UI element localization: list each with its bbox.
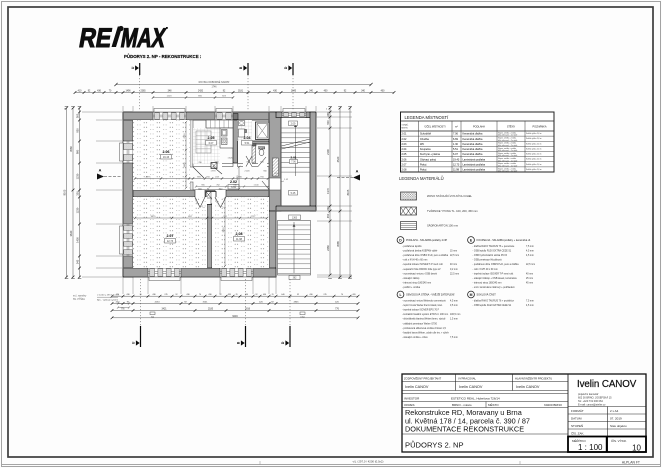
svg-text:6.69: 6.69 [453,138,458,141]
svg-text:920: 920 [151,317,154,319]
svg-text:- vyrovnávací vrstva Weberdur: - vyrovnávací vrstva Weberdur cementová [402,300,446,303]
svg-text:m.č. rozměry: m.č. rozměry [73,295,87,298]
svg-text:10: 10 [632,444,641,453]
svg-text:7,5 mm: 7,5 mm [526,246,534,248]
svg-text:12.73: 12.73 [453,163,460,166]
svg-text:436: 436 [126,294,129,296]
svg-text:40 mm: 40 mm [526,273,533,275]
svg-text:L: L [399,293,401,297]
svg-text:- podlahová dílce OSB/3 P+D, p: - podlahová dílce OSB/3 P+D, pero a dráž… [402,254,449,257]
svg-text:2.04: 2.04 [402,148,407,151]
svg-text:640: 640 [281,294,284,296]
svg-text:1080: 1080 [237,175,239,181]
svg-text:1 970: 1 970 [210,171,216,173]
svg-text:2727: 2727 [251,216,257,218]
svg-text:100,5 mm: 100,5 mm [450,314,460,316]
svg-text:2185: 2185 [208,309,214,311]
svg-text:4,5 mm: 4,5 mm [450,301,458,303]
svg-text:92: 92 [255,294,257,296]
svg-text:SÁDROKARTON 100 mm: SÁDROKARTON 100 mm [427,224,459,228]
svg-text:5.51: 5.51 [245,142,250,145]
svg-text:2816: 2816 [245,309,251,311]
svg-text:335: 335 [228,294,231,296]
svg-text:70: 70 [271,294,273,296]
svg-text:2.02: 2.02 [402,138,407,141]
svg-text:2.07: 2.07 [402,163,407,166]
svg-text:930: 930 [76,128,80,133]
svg-text:6.07: 6.07 [453,153,458,156]
svg-text:1 625: 1 625 [227,158,233,160]
svg-text:- základní penetrace Weber G70: - základní penetrace Weber G700 [402,322,438,325]
svg-text:19.43: 19.43 [163,156,170,159]
svg-text:PŮDORYS 2. NP - REKONSTRUKCE: PŮDORYS 2. NP - REKONSTRUKCE : [124,54,202,59]
svg-text:5.25: 5.25 [291,192,296,195]
svg-text:1370: 1370 [326,188,330,194]
svg-text:3181: 3181 [238,91,244,93]
svg-text:22,5 mm: 22,5 mm [450,255,459,257]
svg-text:- vyrovnávací vrstva z OSB des: - vyrovnávací vrstva z OSB desek [402,272,438,275]
svg-text:2550: 2550 [184,133,186,139]
svg-text:PODLAHA - SKLADBA podlahy 2.NP: PODLAHA - SKLADBA podlahy 2.NP [406,239,447,242]
svg-text:- kontaktní fasádní systém ET: - kontaktní fasádní systém ETICS tl. 100… [402,313,448,316]
svg-text:OZNAČ.: OZNAČ. [402,124,410,127]
svg-text:19.43: 19.43 [453,158,460,161]
svg-text:1230: 1230 [76,173,80,179]
svg-text:ČÍS. VÝKR.: ČÍS. VÝKR. [611,438,627,443]
svg-text:MAX: MAX [119,22,168,53]
svg-text:- tepelná izolace ISOVER EPS 7: - tepelná izolace ISOVER EPS 70 F [402,309,440,312]
svg-text:ČÍS. ZAK.: ČÍS. ZAK. [571,431,585,436]
svg-text:07. 2019: 07. 2019 [610,417,622,421]
svg-text:Schodiště: Schodiště [420,133,432,136]
svg-text:3875: 3875 [151,216,157,218]
svg-text:ZDIVO STÁVAJÍCÍ Z PLNÝCH CIHEL: ZDIVO STÁVAJÍCÍ Z PLNÝCH CIHEL [427,194,473,198]
svg-text:ÚČEL MÍSTNOSTI: ÚČEL MÍSTNOSTI [425,126,446,129]
svg-text:D: D [284,66,288,69]
svg-text:11.98: 11.98 [453,169,460,172]
svg-text:3585: 3585 [336,241,340,247]
svg-text:500: 500 [326,120,330,125]
svg-text:22,5 mm: 22,5 mm [450,273,459,275]
svg-text:- tepelná izolace ISOVER T-P m: - tepelná izolace ISOVER T-P mezi rošt [402,263,443,266]
svg-text:Kuchyně + jídelna: Kuchyně + jídelna [420,153,441,156]
svg-text:2.03: 2.03 [259,146,265,150]
svg-text:- probarvená silikonová omítka: - probarvená silikonová omítka zrnitost … [402,327,446,330]
svg-text:7,5 mm: 7,5 mm [526,301,534,303]
svg-text:320: 320 [76,191,80,196]
svg-text:2845: 2845 [294,302,300,304]
svg-text:6.07: 6.07 [209,142,214,145]
svg-text:7.06: 7.06 [453,133,458,136]
svg-text:U: U [131,66,135,69]
svg-text:OKRES: OKRES [404,403,415,407]
svg-text:- podlahová deska AGEPAN výběr: - podlahová deska AGEPAN výběr [402,250,438,253]
svg-text:Laminátová podlaha: Laminátová podlaha [463,158,486,161]
svg-text:- podbití + omítka: - podbití + omítka [402,286,421,289]
svg-text:INVESTOR: INVESTOR [404,397,420,401]
svg-text:2.03: 2.03 [402,143,407,146]
svg-text:TVÁRNICE YTONG TL. 100, 200, 4: TVÁRNICE YTONG TL. 100, 200, 450 mm [427,209,479,213]
svg-text:SV. VÝŠKA: SV. VÝŠKA [73,298,85,301]
svg-text:12.73: 12.73 [167,240,174,243]
svg-text:ALPLAN FT: ALPLAN FT [622,461,640,465]
svg-text:3640: 3640 [69,230,73,236]
svg-text:8105: 8105 [63,189,67,195]
svg-text:Světlá výška 2,6 m: Světlá výška 2,6 m [526,168,542,171]
svg-text:7.06: 7.06 [291,162,296,164]
svg-text:bílá, otěruvzd. + 2x nátěr: bílá, otěruvzd. + 2x nátěr [498,170,518,173]
svg-text:Světlá výška 2,6 m: Světlá výška 2,6 m [526,137,542,140]
svg-text:A: A [356,170,359,174]
svg-text:430: 430 [309,294,312,296]
svg-text:230: 230 [326,206,330,211]
svg-text:Světlá výška 2,6 m: Světlá výška 2,6 m [526,153,542,156]
svg-text:STĚNY: STĚNY [507,126,516,129]
svg-text:STUPEŇ: STUPEŇ [571,423,583,428]
svg-text:± 0,000 = 297,0 m n.m.: ± 0,000 = 297,0 m n.m. [97,295,120,297]
svg-text:Ivelin CANOV: Ivelin CANOV [459,385,483,389]
svg-text:- dlažba RAKO TAURUS 76 + pene: - dlažba RAKO TAURUS 76 + penetrace [473,245,515,248]
svg-text:Chodba: Chodba [420,138,429,141]
svg-text:2 020: 2 020 [244,171,250,173]
svg-text:ESTETICO REAL, Hybešova 726/14: ESTETICO REAL, Hybešova 726/14 [451,397,500,401]
svg-text:POZNÁMKA: POZNÁMKA [532,126,546,129]
svg-text:11.98: 11.98 [236,238,243,241]
svg-text:- trámový strop 180/240 mm: - trámový strop 180/240 mm [473,281,502,284]
svg-text:436: 436 [152,294,155,296]
svg-text:3,5 mm: 3,5 mm [450,305,458,307]
svg-text:1.30: 1.30 [453,143,458,146]
svg-text:Keramická dlažba: Keramická dlažba [463,148,483,151]
svg-text:3141: 3141 [203,302,209,304]
svg-text:1230: 1230 [76,207,80,213]
svg-text:- stávající záklop: - stávající záklop [402,277,420,280]
svg-text:PODLAHA: PODLAHA [473,126,485,129]
svg-text:70: 70 [341,294,343,296]
svg-text:RE: RE [77,22,114,53]
svg-text:VYPRACOVAL: VYPRACOVAL [458,377,477,381]
svg-text:4,5 mm: 4,5 mm [526,251,534,253]
svg-text:- sklovláknitá tkanina Weber.t: - sklovláknitá tkanina Weber.therm, výzt… [402,318,446,321]
svg-text:1203: 1203 [167,95,173,97]
svg-text:2.01: 2.01 [402,133,407,136]
svg-text:Keramická dlažba: Keramická dlažba [463,143,483,146]
svg-text:OBVODOVÁ STĚNA - VNĚJŠÍ ZATEPL: OBVODOVÁ STĚNA - VNĚJŠÍ ZATEPLENÍ [406,294,455,297]
svg-text:2190: 2190 [326,149,330,155]
svg-text:BRNO - město: BRNO - město [452,403,472,407]
svg-text:LEGENDA MATERIÁLŮ: LEGENDA MATERIÁLŮ [399,176,444,181]
svg-text:70: 70 [235,294,237,296]
svg-text:- stávající záklop + OSB desek: - stávající záklop + OSB desek, konstruk… [473,277,518,280]
svg-text:1 100: 1 100 [253,184,259,186]
svg-text:- stávající omítka + zdivo: - stávající omítka + zdivo [402,336,428,339]
svg-text:1905: 1905 [184,162,186,168]
svg-text:FORMÁT: FORMÁT [571,409,584,413]
svg-text:m²: m² [455,126,458,129]
svg-text:Ivelin CANOV: Ivelin CANOV [577,379,637,390]
svg-text:2 x A4: 2 x A4 [610,409,619,413]
svg-text:92: 92 [175,294,177,296]
svg-text:8105: 8105 [346,189,350,195]
svg-text:MÍSTN.: MÍSTN. [402,126,409,129]
svg-text:45 mm: 45 mm [526,282,533,284]
svg-text:5.51: 5.51 [453,148,458,151]
svg-text:Keramická dlažba: Keramická dlažba [463,153,483,156]
svg-text:745: 745 [323,294,326,296]
svg-text:92: 92 [297,294,299,296]
svg-text:2.06: 2.06 [402,158,407,161]
svg-text:Pokoj: Pokoj [420,169,427,172]
svg-text:- fasádní barva Weber, odstín: - fasádní barva Weber, odstín dle inv. +… [402,331,449,334]
svg-text:Světlá výška 2,6 m: Světlá výška 2,6 m [526,132,542,135]
svg-text:- trámový strop 180/240 mm: - trámový strop 180/240 mm [402,281,431,284]
svg-text:- OSB penetrace Hloubková: - OSB penetrace Hloubková [473,259,503,262]
svg-text:2.08: 2.08 [402,169,407,172]
svg-text:2.04: 2.04 [244,136,251,140]
svg-text:15 mm: 15 mm [450,251,457,253]
svg-text:2.08: 2.08 [236,232,243,236]
svg-text:Světlá výška 2,6 m: Světlá výška 2,6 m [526,147,542,150]
svg-text:Ivelin CANOV: Ivelin CANOV [405,385,429,389]
svg-text:Světlá výška 2,6 m: Světlá výška 2,6 m [526,163,542,166]
svg-text:420: 420 [352,294,355,296]
svg-text:ROVINA ODBORNÉ NADPR: ROVINA ODBORNÉ NADPR [199,81,230,84]
svg-text:92: 92 [219,294,221,296]
svg-text:450: 450 [326,213,330,218]
svg-text:1,5 mm: 1,5 mm [450,319,458,321]
svg-text:WC: WC [420,143,424,146]
svg-text:- OSB lepidlo FLEX EXTRA CE2E: - OSB lepidlo FLEX EXTRA CE2E S1 [473,304,512,307]
svg-text:Keramická dlažba: Keramická dlažba [463,138,483,141]
svg-text:9246: 9246 [232,315,238,318]
svg-text:DATUM: DATUM [571,417,582,421]
svg-text:0,2 mm: 0,2 mm [450,269,458,271]
svg-text:25 mm: 25 mm [526,278,533,280]
svg-text:Stav objektu: Stav objektu [610,424,627,428]
svg-text:Ivelin CANOV: Ivelin CANOV [516,385,540,389]
svg-text:2845: 2845 [291,91,297,93]
svg-text:Laminátová podlaha: Laminátová podlaha [463,163,486,166]
svg-text:- separační fólie PAROC fólie: - separační fólie PAROC fólie typu LV [402,268,441,271]
svg-text:Koupelna: Koupelna [420,148,431,151]
svg-text:70: 70 [139,294,141,296]
svg-text:1363: 1363 [292,217,298,219]
svg-text:- rošt z KVH 40 x 60 mm: - rošt z KVH 40 x 60 mm [473,268,498,271]
svg-text:- tepelná izolace ISOVER T-P m: - tepelná izolace ISOVER T-P mezi rošt [473,272,514,275]
svg-text:2420: 2420 [198,91,204,93]
svg-text:Obývací pokoj: Obývací pokoj [420,158,436,161]
svg-text:436: 436 [263,294,266,296]
svg-text:LEGENDA MÍSTNOSTÍ: LEGENDA MÍSTNOSTÍ [405,115,450,120]
svg-text:4875: 4875 [146,176,152,178]
svg-text:22,5 mm: 22,5 mm [526,264,535,266]
svg-text:- OSB lepidlo FLEX EXTRA CE2E: - OSB lepidlo FLEX EXTRA CE2E S1 [473,250,512,253]
svg-text:2.05: 2.05 [208,136,215,140]
svg-text:2460: 2460 [326,245,330,251]
svg-text:Keramická dlažba: Keramická dlažba [463,133,483,136]
svg-text:60200 BRNO: 60200 BRNO [544,403,563,407]
svg-text:- OSB hydroizolační stěrka PCI: - OSB hydroizolační stěrka PCI R [473,254,508,257]
svg-text:3560: 3560 [69,146,73,152]
svg-text:- podlahové dílce OSB/3 P+D, p: - podlahové dílce OSB/3 P+D, pero a dráž… [473,263,520,266]
svg-text:2365: 2365 [140,91,146,93]
svg-text:1450: 1450 [76,237,80,243]
svg-text:Laminátová podlaha: Laminátová podlaha [463,169,486,172]
svg-text:- lepicí hmota Weber.therm kla: - lepicí hmota Weber.therm klasik, těsn. [402,304,443,307]
svg-text:436: 436 [186,294,189,296]
svg-text:- podlahové lepidlo: - podlahové lepidlo [402,246,422,248]
svg-text:40 mm: 40 mm [450,264,457,266]
svg-text:365: 365 [76,113,80,118]
svg-text:3430: 3430 [223,227,225,233]
svg-text:3421: 3421 [161,309,167,311]
svg-text:2.06: 2.06 [163,150,170,154]
svg-text:- dlažba RAKO TAURUS 76 + prot: - dlažba RAKO TAURUS 76 + protiskluz [473,300,515,303]
svg-text:KOUPELNA - SKLADBA podlahy + k: KOUPELNA - SKLADBA podlahy + keramická d… [477,239,531,242]
svg-text:4,5 mm: 4,5 mm [526,305,534,307]
svg-text:436: 436 [208,294,211,296]
svg-text:4154: 4154 [155,302,161,304]
svg-text:2.07: 2.07 [167,234,174,238]
svg-text:v/L i 297,0 / 4200 (0,0x2): v/L i 297,0 / 4200 (0,0x2) [353,460,384,464]
svg-text:- rošt z KVH 40 x 60 mm: - rošt z KVH 40 x 60 mm [402,259,427,262]
svg-text:Světlá výška 2,6 m: Světlá výška 2,6 m [526,142,542,145]
svg-text:D: D [281,341,285,344]
svg-text:- omít. konstrukce nátěrový +: - omít. konstrukce nátěrový + podhledem [473,286,515,289]
svg-text:70: 70 [199,294,201,296]
svg-text:M: M [470,293,473,297]
svg-text:2.01: 2.01 [290,156,296,160]
svg-text:2.09: 2.09 [291,123,296,126]
svg-text:545: 545 [76,259,80,264]
svg-text:745: 745 [164,294,167,296]
svg-text:Bpv - výškový systém: Bpv - výškový systém [97,299,118,302]
svg-text:436: 436 [245,294,248,296]
svg-text:1964: 1964 [300,317,304,319]
svg-text:2.05: 2.05 [402,153,407,156]
svg-text:MĚSTO: MĚSTO [488,402,499,407]
svg-text:4520: 4520 [336,156,340,162]
svg-text:1 : 100: 1 : 100 [578,443,603,452]
svg-text:U: U [132,341,136,344]
svg-text:DOKUMENTACE REKONSTRUKCE: DOKUMENTACE REKONSTRUKCE [405,425,524,434]
svg-text:A: A [99,169,102,173]
svg-text:SOKLOVÁ ČÁST: SOKLOVÁ ČÁST [477,294,497,297]
svg-text:B: B [237,341,241,344]
svg-text:E-mail: canov@atelier.cz: E-mail: canov@atelier.cz [578,404,606,407]
svg-text:B: B [239,66,243,69]
svg-text:1496: 1496 [125,91,131,93]
svg-text:1746: 1746 [211,87,217,89]
svg-text:Světlá výška 2,6 m: Světlá výška 2,6 m [526,158,542,161]
svg-text:Pokoj: Pokoj [420,163,427,166]
svg-text:245: 245 [326,112,330,117]
svg-text:4,5 mm: 4,5 mm [526,255,534,257]
svg-text:980: 980 [76,149,80,154]
svg-text:PŮDORYS 2. NP: PŮDORYS 2. NP [405,441,464,450]
svg-text:7,5 mm: 7,5 mm [450,337,458,339]
